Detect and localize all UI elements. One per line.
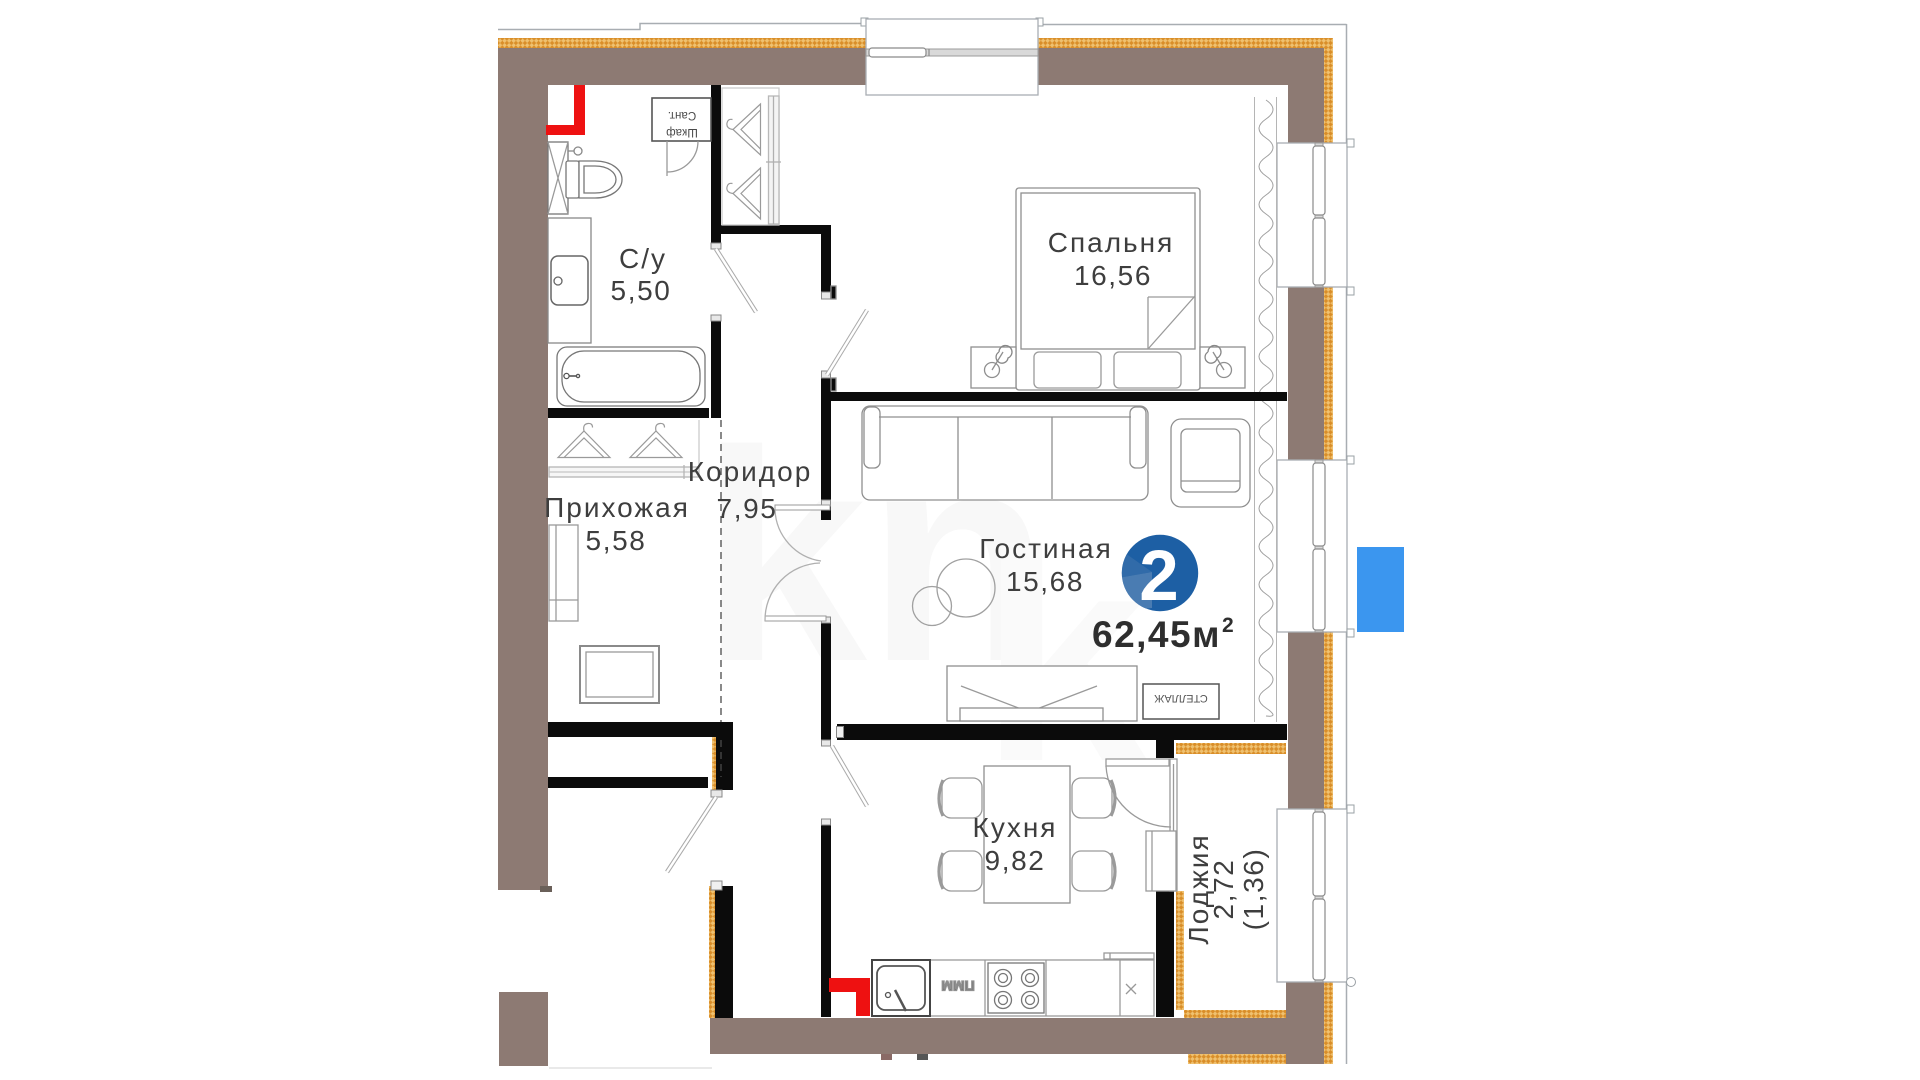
svg-text:Кухня: Кухня bbox=[973, 812, 1058, 843]
svg-text:СТЕЛЛАЖ: СТЕЛЛАЖ bbox=[1154, 692, 1208, 704]
svg-text:2: 2 bbox=[1139, 537, 1179, 616]
svg-text:62,45м2: 62,45м2 bbox=[1092, 614, 1235, 655]
svg-text:Сант.: Сант. bbox=[668, 109, 696, 121]
svg-text:5,58: 5,58 bbox=[586, 525, 647, 556]
svg-text:Прихожая: Прихожая bbox=[544, 492, 690, 523]
svg-text:Шкаф: Шкаф bbox=[666, 126, 698, 138]
svg-text:(1,36): (1,36) bbox=[1238, 848, 1269, 931]
svg-text:ПММ: ПММ bbox=[941, 978, 974, 994]
svg-text:16,56: 16,56 bbox=[1074, 260, 1152, 291]
svg-text:9,82: 9,82 bbox=[985, 845, 1046, 876]
svg-text:15,68: 15,68 bbox=[1006, 566, 1084, 597]
svg-text:2,72: 2,72 bbox=[1208, 859, 1239, 920]
svg-text:Спальня: Спальня bbox=[1048, 227, 1175, 258]
svg-text:С/у: С/у bbox=[619, 243, 667, 274]
svg-text:7,95: 7,95 bbox=[717, 493, 778, 524]
svg-text:Гостиная: Гостиная bbox=[979, 533, 1113, 564]
svg-text:Коридор: Коридор bbox=[688, 456, 813, 487]
svg-text:5,50: 5,50 bbox=[611, 275, 672, 306]
